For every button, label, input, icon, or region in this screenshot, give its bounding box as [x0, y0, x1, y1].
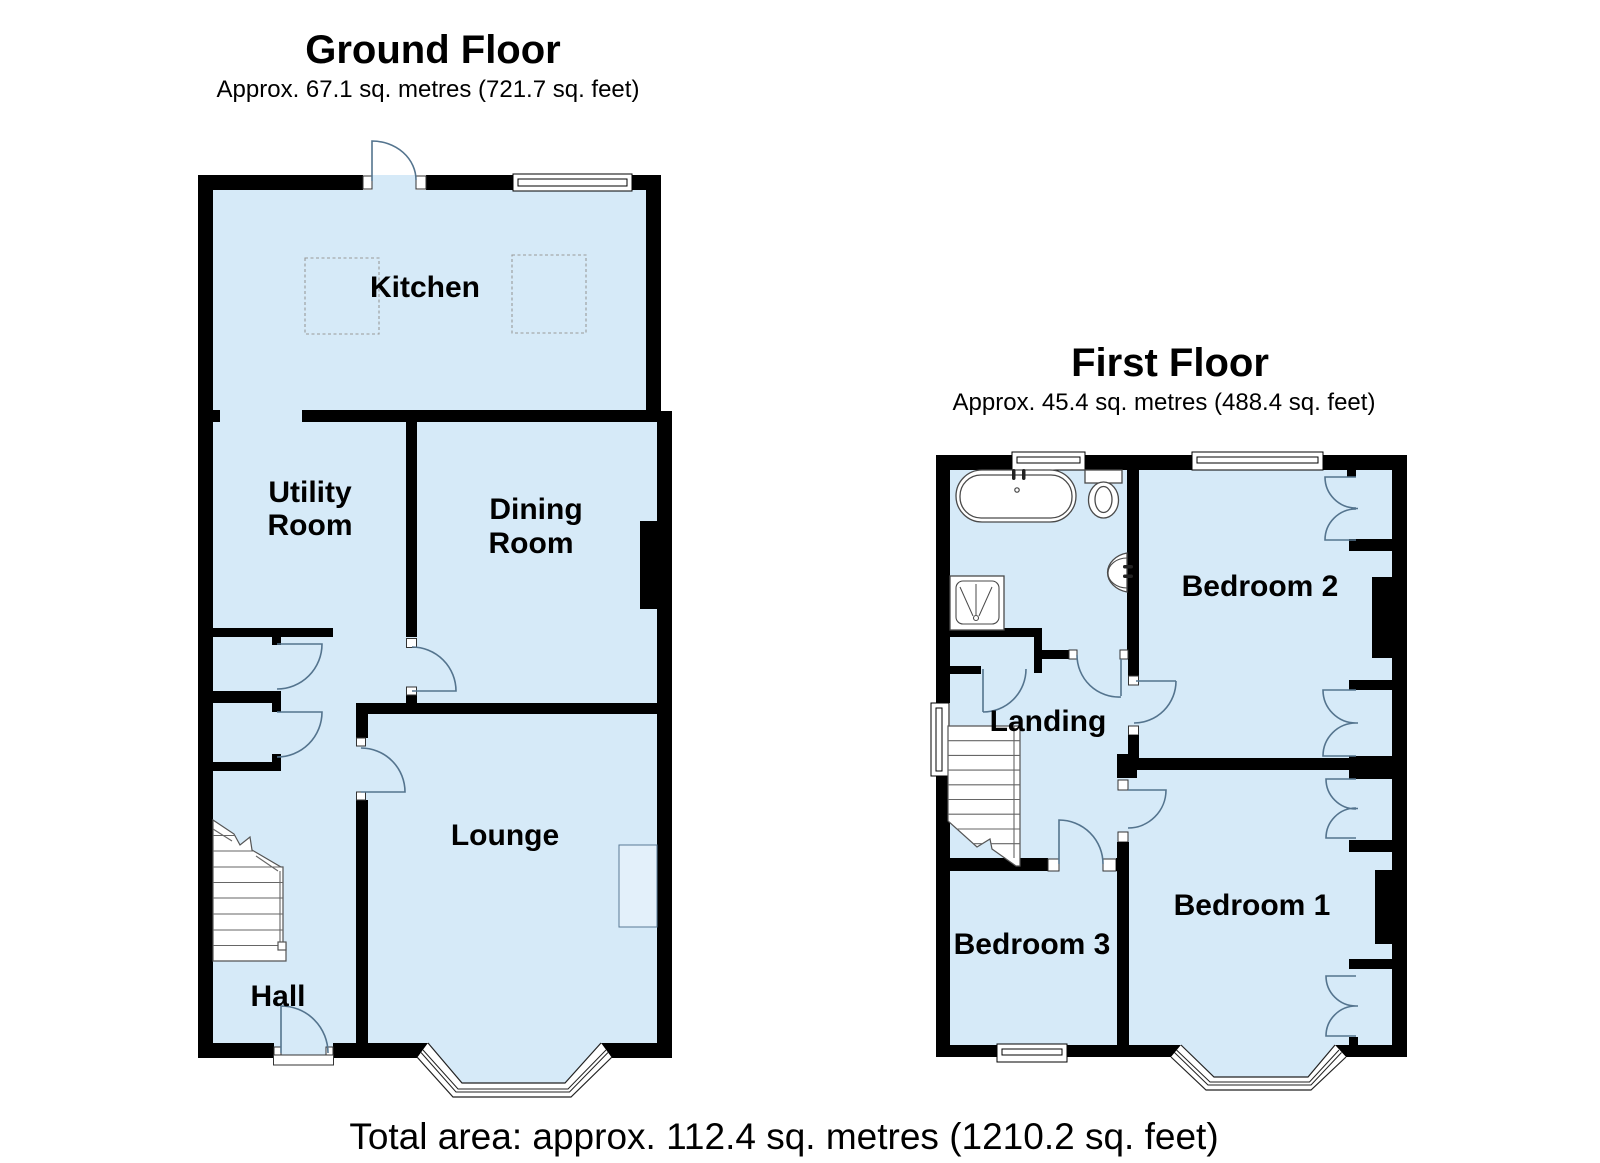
svg-text:Bedroom 2: Bedroom 2	[1182, 570, 1339, 603]
svg-text:Ground Floor: Ground Floor	[305, 28, 561, 72]
svg-text:First Floor: First Floor	[1071, 341, 1269, 385]
svg-text:Kitchen: Kitchen	[370, 271, 480, 304]
svg-text:Total area: approx. 112.4 sq.: Total area: approx. 112.4 sq. metres (12…	[349, 1116, 1218, 1157]
svg-text:Approx. 45.4 sq. metres (488.4: Approx. 45.4 sq. metres (488.4 sq. feet)	[953, 389, 1376, 416]
svg-text:Landing: Landing	[990, 705, 1107, 738]
svg-text:Utility: Utility	[268, 476, 352, 509]
svg-text:Room: Room	[489, 527, 574, 560]
svg-text:Lounge: Lounge	[451, 819, 559, 852]
svg-text:Bedroom 3: Bedroom 3	[954, 928, 1111, 961]
svg-text:Approx. 67.1 sq. metres (721.7: Approx. 67.1 sq. metres (721.7 sq. feet)	[217, 76, 640, 103]
svg-text:Dining: Dining	[489, 493, 582, 526]
svg-text:Bedroom 1: Bedroom 1	[1174, 889, 1331, 922]
svg-text:Hall: Hall	[250, 980, 305, 1013]
svg-text:Room: Room	[268, 509, 353, 542]
